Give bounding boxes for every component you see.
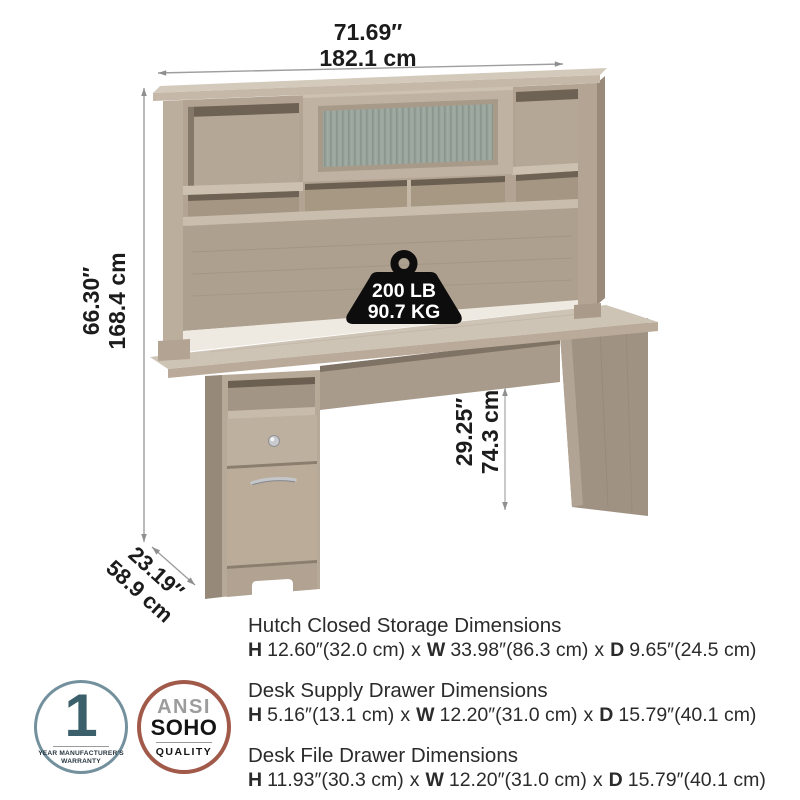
overall-width-label: 71.69″ 182.1 cm	[268, 19, 468, 71]
spec-title: Desk Supply Drawer Dimensions	[248, 678, 766, 703]
desk-height-cm: 74.3 cm	[477, 390, 503, 474]
dimension-specs: Hutch Closed Storage Dimensions H12.60″(…	[248, 613, 766, 800]
warranty-badge: 1 YEAR MANUFACTURER'S WARRANTY	[34, 680, 128, 774]
hutch-right-foot	[574, 303, 601, 319]
desk-height-inches: 29.25″	[451, 390, 477, 474]
weight-capacity-lb: 200 LB	[372, 280, 436, 302]
product-dimension-diagram: 200 LB 90.7 KG	[0, 0, 800, 800]
desk	[150, 303, 658, 599]
pedestal-cubby	[228, 377, 315, 419]
pedestal-left-side	[205, 375, 222, 599]
hutch-left-side-panel	[163, 100, 183, 342]
spec-title: Hutch Closed Storage Dimensions	[248, 613, 766, 638]
overall-height-inches: 66.30″	[78, 252, 104, 349]
hutch-left-foot	[158, 339, 190, 361]
file-drawer	[227, 464, 317, 569]
ansi-soho-quality-badge: ANSI SOHO QUALITY	[137, 680, 231, 774]
desk-pedestal	[205, 370, 320, 599]
hutch-right-cubby	[516, 89, 578, 171]
spec-values: H11.93″(30.3 cm)xW12.20″(31.0 cm)xD15.79…	[248, 768, 766, 792]
drawer-knob	[269, 436, 280, 447]
hutch-right-side-panel	[578, 76, 605, 307]
height-dimension-line	[141, 88, 147, 542]
supply-drawer-spec: Desk Supply Drawer Dimensions H5.16″(13.…	[248, 678, 766, 727]
spec-values: H5.16″(13.1 cm)xW12.20″(31.0 cm)xD15.79″…	[248, 703, 766, 727]
quality-badge-line2: SOHO	[151, 717, 218, 739]
hutch-center-door	[303, 86, 513, 182]
desk-height-dimension-line	[502, 388, 508, 510]
spec-values: H12.60″(32.0 cm)xW33.98″(86.3 cm)xD9.65″…	[248, 638, 766, 662]
quality-badge-line3: QUALITY	[156, 746, 213, 758]
supply-drawer	[227, 415, 317, 469]
overall-height-label: 66.30″ 168.4 cm	[78, 252, 130, 349]
hutch-storage-spec: Hutch Closed Storage Dimensions H12.60″(…	[248, 613, 766, 662]
warranty-caption-line1: YEAR MANUFACTURER'S	[38, 750, 124, 758]
desk-right-leg	[560, 318, 648, 516]
warranty-caption-line2: WARRANTY	[61, 758, 101, 766]
hutch-right-small-cubby	[516, 171, 578, 204]
overall-height-cm: 168.4 cm	[104, 252, 130, 349]
spec-title: Desk File Drawer Dimensions	[248, 743, 766, 768]
weight-capacity-kg: 90.7 KG	[368, 301, 441, 323]
hutch-left-cubby	[188, 103, 299, 192]
badge-divider	[156, 742, 212, 743]
door-glass-panel	[323, 104, 493, 167]
quality-badge-line1: ANSI	[157, 697, 211, 717]
overall-width-cm: 182.1 cm	[268, 45, 468, 71]
overall-width-inches: 71.69″	[268, 19, 468, 45]
file-drawer-spec: Desk File Drawer Dimensions H11.93″(30.3…	[248, 743, 766, 792]
desk-height-label: 29.25″ 74.3 cm	[451, 390, 503, 474]
warranty-years: 1	[64, 689, 97, 743]
badge-divider	[53, 746, 109, 747]
